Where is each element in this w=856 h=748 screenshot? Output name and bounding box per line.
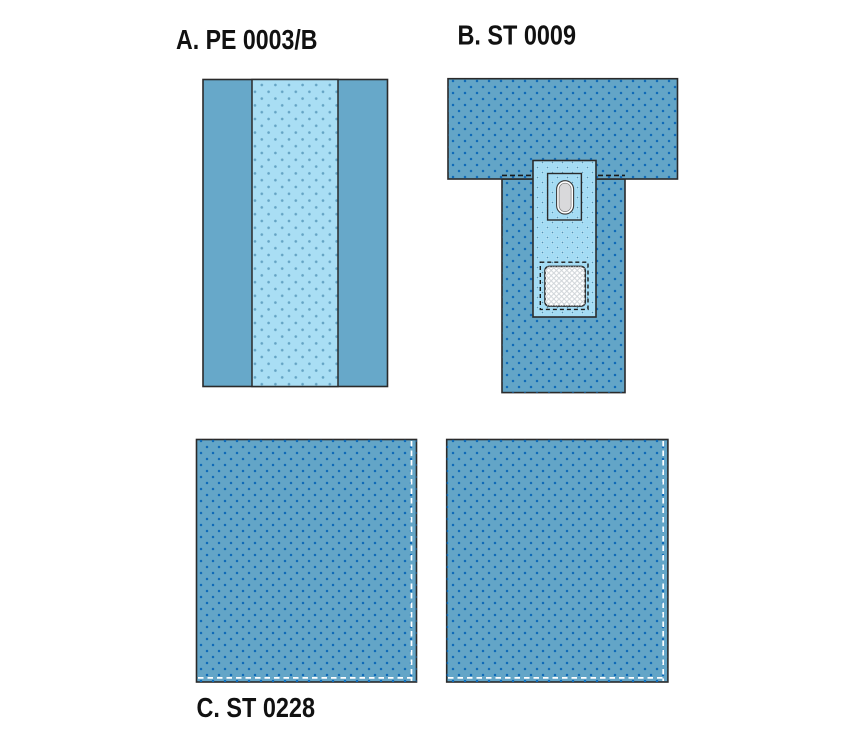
svg-text:B. ST 0009: B. ST 0009 xyxy=(458,19,577,50)
svg-text:A. PE 0003/B: A. PE 0003/B xyxy=(176,24,318,55)
svg-text:C. ST 0228: C. ST 0228 xyxy=(197,692,316,723)
